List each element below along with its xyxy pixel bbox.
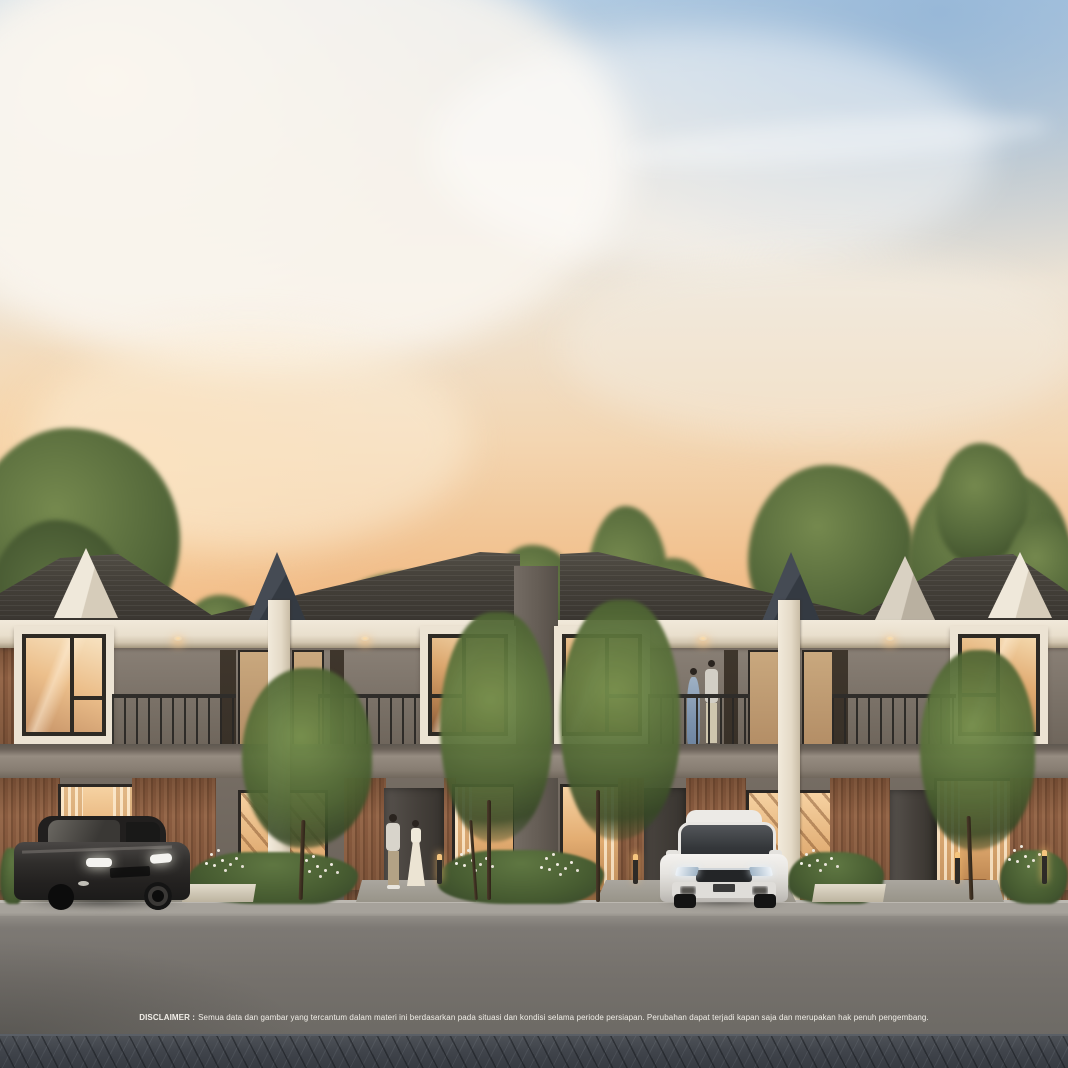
car-headlight <box>86 858 112 867</box>
disclaimer-label: DISCLAIMER : <box>139 1013 195 1022</box>
shoes <box>387 885 400 889</box>
car-license-plate <box>713 884 735 892</box>
blouse <box>411 828 421 843</box>
front-tree-canopy <box>440 612 552 842</box>
tree-trunk <box>596 790 600 902</box>
car-wheel <box>144 882 172 910</box>
garden-light-bollard <box>633 854 638 884</box>
window-glass <box>22 634 106 736</box>
garden-light-bollard <box>955 852 960 884</box>
front-tree-canopy <box>920 650 1035 850</box>
car-grille <box>696 868 752 882</box>
driveway <box>872 880 1004 902</box>
window-transom <box>70 696 102 700</box>
white-flowers <box>800 862 803 865</box>
planter-wall <box>812 884 886 902</box>
soffit-downlight <box>174 636 182 641</box>
soffit-downlight <box>361 636 369 641</box>
long-skirt <box>407 842 425 886</box>
shirt <box>386 823 400 851</box>
car-headlight <box>150 853 173 864</box>
garden-light-bollard <box>437 854 442 884</box>
soffit-downlight <box>699 636 707 641</box>
white-flowers <box>205 862 208 865</box>
upper-window-box <box>14 626 114 744</box>
black-hatchback-car <box>14 814 190 910</box>
car-wheel <box>674 894 696 908</box>
tree-trunk <box>487 800 491 900</box>
white-flowers <box>540 866 543 869</box>
balcony-railing <box>112 694 236 750</box>
car-side-window <box>126 822 160 844</box>
disclaimer-body: Semua data dan gambar yang tercantum dal… <box>198 1013 929 1022</box>
front-tree-canopy <box>242 668 372 848</box>
cloud <box>560 250 1068 440</box>
front-tree-canopy <box>560 600 680 840</box>
trousers <box>388 851 399 885</box>
garden-bed <box>438 850 604 904</box>
driveway-man <box>382 814 404 890</box>
car-windshield <box>48 820 120 844</box>
garden-light-bollard <box>1042 850 1047 884</box>
car-wheel <box>754 894 776 908</box>
white-hatchback-car <box>652 810 792 908</box>
disclaimer-text: DISCLAIMER :Semua data dan gambar yang t… <box>0 1011 1068 1025</box>
car-headlight <box>675 867 699 876</box>
car-headlight <box>749 867 773 876</box>
window-mullion <box>70 638 74 732</box>
sunset-reflection <box>26 638 102 732</box>
car-grille <box>110 866 150 878</box>
driveway-woman <box>404 820 428 890</box>
planter-wall <box>182 884 256 902</box>
car-wheel <box>48 884 74 910</box>
paver-footpath <box>0 1034 1068 1068</box>
townhouse-rendering-scene: DISCLAIMER :Semua data dan gambar yang t… <box>0 0 1068 1068</box>
white-flowers <box>455 862 458 865</box>
white-flowers <box>1008 858 1011 861</box>
car-fog-light <box>78 881 89 886</box>
soffit-downlight <box>886 636 894 641</box>
